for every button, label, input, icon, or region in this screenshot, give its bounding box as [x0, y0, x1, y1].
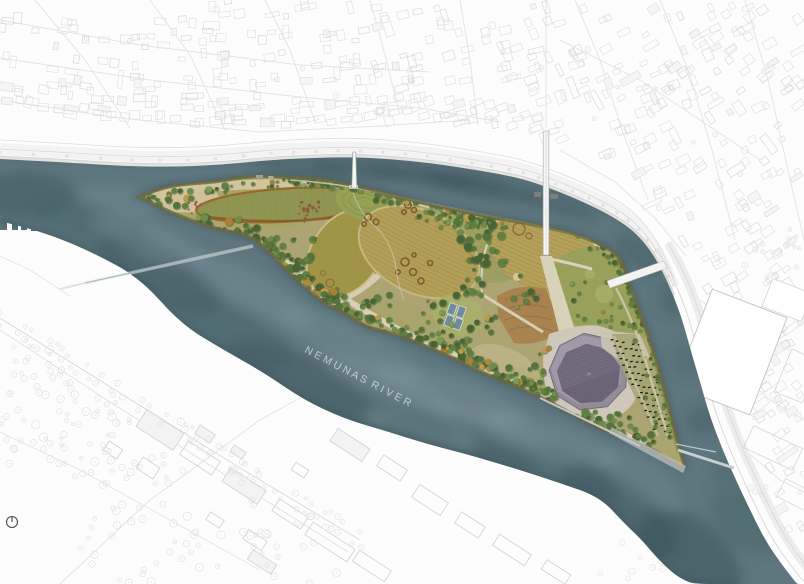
- svg-text:H: H: [587, 372, 590, 377]
